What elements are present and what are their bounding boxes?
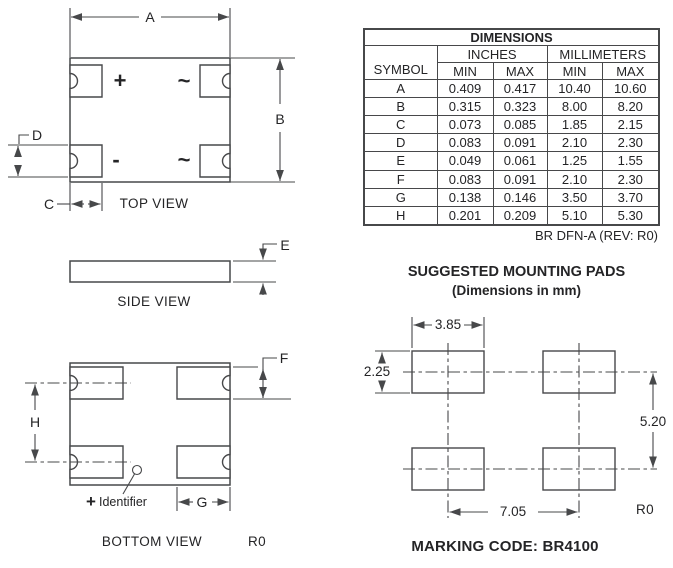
cell-inch-max: 0.061	[493, 152, 547, 170]
dimension-F: F	[233, 350, 291, 399]
dim-label-c: C	[44, 196, 54, 212]
dimension-A: A	[70, 8, 230, 57]
cell-symbol: D	[364, 134, 437, 152]
dimensions-table: DIMENSIONS SYMBOL INCHES MILLIMETERS MIN…	[363, 28, 660, 226]
pad-width-label: 3.85	[435, 317, 461, 332]
cell-symbol: G	[364, 188, 437, 206]
cell-inch-max: 0.091	[493, 134, 547, 152]
top-view-caption: TOP VIEW	[120, 196, 189, 211]
dim-label-h: H	[30, 414, 40, 430]
cell-inch-min: 0.073	[437, 116, 493, 134]
table-header-inches: INCHES	[437, 46, 547, 63]
table-title: DIMENSIONS	[364, 29, 659, 46]
pad-height-label: 2.25	[364, 364, 390, 379]
cell-mm-max: 2.15	[602, 116, 659, 134]
cell-mm-min: 1.85	[547, 116, 602, 134]
mounting-pads-subtitle: (Dimensions in mm)	[360, 283, 673, 298]
cell-mm-min: 1.25	[547, 152, 602, 170]
cell-symbol: B	[364, 98, 437, 116]
cell-mm-min: 2.10	[547, 170, 602, 188]
table-row: A 0.409 0.417 10.40 10.60	[364, 80, 659, 98]
cell-inch-min: 0.138	[437, 188, 493, 206]
top-view-drawing: A B D C + ~ - ~ TOP VIEW	[0, 0, 330, 225]
table-row: C 0.073 0.085 1.85 2.15	[364, 116, 659, 134]
cell-mm-max: 2.30	[602, 170, 659, 188]
cell-symbol: C	[364, 116, 437, 134]
side-body-outline	[70, 261, 230, 282]
table-row: G 0.138 0.146 3.50 3.70	[364, 188, 659, 206]
cell-mm-min: 2.10	[547, 134, 602, 152]
side-view-drawing: E SIDE VIEW	[0, 225, 330, 320]
marking-code: MARKING CODE: BR4100	[355, 538, 655, 555]
cell-inch-min: 0.201	[437, 206, 493, 225]
cell-symbol: A	[364, 80, 437, 98]
bottom-view-rev: R0	[248, 534, 266, 549]
package-pads	[70, 65, 230, 177]
cell-inch-min: 0.049	[437, 152, 493, 170]
table-header-millimeters: MILLIMETERS	[547, 46, 659, 63]
dim-label-a: A	[145, 9, 155, 25]
table-row: E 0.049 0.061 1.25 1.55	[364, 152, 659, 170]
dimension-E: E	[233, 237, 290, 295]
cell-symbol: H	[364, 206, 437, 225]
ac-pin-mark-bottom: ~	[178, 147, 191, 172]
polarity-marks: + ~ - ~	[112, 68, 190, 172]
ac-pin-mark-top: ~	[178, 68, 191, 93]
bottom-view-drawing: H F G + Identifier BOTTOM VIEW R0	[0, 330, 330, 568]
cell-inch-min: 0.083	[437, 134, 493, 152]
mounting-rev: R0	[636, 502, 654, 517]
dimension-C: C	[44, 183, 102, 212]
dimension-D: D	[8, 127, 68, 177]
cell-inch-max: 0.417	[493, 80, 547, 98]
dimension-B: B	[230, 58, 295, 182]
bottom-view-caption: BOTTOM VIEW	[102, 534, 202, 549]
minus-pin-mark: -	[112, 147, 119, 172]
identifier-plus-mark: +	[86, 492, 96, 511]
table-header-min: MIN	[547, 63, 602, 80]
bottom-pads	[70, 367, 230, 478]
table-row: B 0.315 0.323 8.00 8.20	[364, 98, 659, 116]
table-row: F 0.083 0.091 2.10 2.30	[364, 170, 659, 188]
table-row: D 0.083 0.091 2.10 2.30	[364, 134, 659, 152]
cell-inch-max: 0.323	[493, 98, 547, 116]
cell-mm-max: 2.30	[602, 134, 659, 152]
side-view-caption: SIDE VIEW	[117, 294, 190, 309]
identifier-label: Identifier	[99, 495, 147, 509]
dimension-row-pitch: 5.20	[640, 374, 666, 468]
cell-mm-max: 5.30	[602, 206, 659, 225]
cell-inch-min: 0.083	[437, 170, 493, 188]
mounting-pads-drawing: 3.85 2.25 5.20 7.05 R0	[360, 308, 673, 530]
col-pitch-label: 7.05	[500, 504, 526, 519]
cell-mm-max: 1.55	[602, 152, 659, 170]
package-revision-note: BR DFN-A (REV: R0)	[363, 228, 658, 243]
table-header-max: MAX	[493, 63, 547, 80]
dim-label-d: D	[32, 127, 42, 143]
dimension-G: G	[177, 487, 230, 511]
dim-label-f: F	[280, 350, 289, 366]
dimension-H: H	[30, 385, 40, 461]
dimension-col-pitch: 7.05	[450, 504, 578, 519]
cell-mm-min: 3.50	[547, 188, 602, 206]
cell-inch-max: 0.091	[493, 170, 547, 188]
cell-mm-min: 5.10	[547, 206, 602, 225]
cell-inch-min: 0.315	[437, 98, 493, 116]
cell-mm-min: 8.00	[547, 98, 602, 116]
cell-symbol: E	[364, 152, 437, 170]
cell-inch-max: 0.209	[493, 206, 547, 225]
mounting-pads-title: SUGGESTED MOUNTING PADS	[360, 264, 673, 280]
identifier-dot	[133, 466, 142, 475]
cell-inch-max: 0.085	[493, 116, 547, 134]
cell-mm-max: 10.60	[602, 80, 659, 98]
cell-mm-max: 3.70	[602, 188, 659, 206]
dim-label-g: G	[197, 494, 208, 510]
cell-mm-min: 10.40	[547, 80, 602, 98]
table-header-symbol: SYMBOL	[364, 46, 437, 80]
cell-inch-min: 0.409	[437, 80, 493, 98]
row-pitch-label: 5.20	[640, 414, 666, 429]
table-header-max: MAX	[602, 63, 659, 80]
cell-symbol: F	[364, 170, 437, 188]
table-row: H 0.201 0.209 5.10 5.30	[364, 206, 659, 225]
dim-label-e: E	[280, 237, 289, 253]
cell-mm-max: 8.20	[602, 98, 659, 116]
plus-pin-mark: +	[114, 68, 127, 93]
dim-label-b: B	[275, 111, 284, 127]
cell-inch-max: 0.146	[493, 188, 547, 206]
table-header-min: MIN	[437, 63, 493, 80]
